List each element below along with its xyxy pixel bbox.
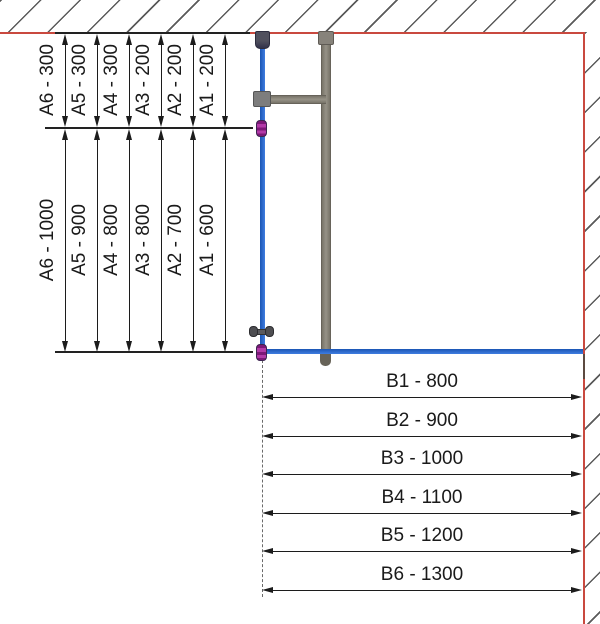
dim-label: A3 - 800 [131, 140, 157, 340]
ceiling-mount-cap [255, 31, 270, 49]
arrow-down-icon [222, 341, 228, 352]
dim-label: B2 - 900 [332, 409, 512, 433]
wall-line-dark-segment [583, 354, 585, 379]
dim-label: A6 - 1000 [35, 140, 61, 340]
wall-bracket-knob-left [249, 326, 258, 337]
glass-panel-edge-vertical [260, 40, 265, 354]
dim-label: A1 - 200 [195, 20, 221, 140]
arrow-right-icon [571, 510, 582, 516]
dim-label: A5 - 900 [67, 140, 93, 340]
connector-floor [256, 344, 267, 361]
wall-bracket-knob-right [265, 326, 274, 337]
arrow-down-icon [62, 341, 68, 352]
dim-label: A1 - 600 [195, 140, 221, 340]
support-bar-ceiling-cap [318, 31, 334, 45]
dim-label: B1 - 800 [332, 370, 512, 394]
dim-label: A4 - 800 [99, 140, 125, 340]
wall-hatch [585, 32, 600, 624]
dim-label: B5 - 1200 [332, 524, 512, 548]
dim-label: A3 - 200 [131, 20, 157, 140]
arrow-down-icon [190, 341, 196, 352]
arrow-down-icon [94, 341, 100, 352]
support-bar-horizontal [262, 95, 326, 104]
arrow-down-icon [222, 116, 228, 127]
arrow-down-icon [126, 341, 132, 352]
dim-label: B6 - 1300 [332, 563, 512, 587]
arrow-right-icon [571, 433, 582, 439]
arrow-down-icon [158, 341, 164, 352]
dim-label: A2 - 700 [163, 140, 189, 340]
arrow-right-icon [571, 587, 582, 593]
arrow-right-icon [571, 548, 582, 554]
support-bar-vertical [321, 33, 331, 358]
wall-line [583, 32, 585, 624]
dim-label: A4 - 300 [99, 20, 125, 140]
dimension-diagram: A6 - 300 A5 - 300 A4 - 300 A3 - 200 A2 -… [0, 0, 600, 624]
dim-label: B4 - 1100 [332, 486, 512, 510]
dim-label: A2 - 200 [163, 20, 189, 140]
glass-clamp-bracket [253, 91, 271, 107]
dim-label: A5 - 300 [67, 20, 93, 140]
glass-panel-edge-horizontal [262, 349, 583, 354]
arrow-right-icon [571, 394, 582, 400]
connector-mid [256, 120, 267, 137]
dim-label: B3 - 1000 [332, 447, 512, 471]
dim-label: A6 - 300 [35, 20, 61, 140]
support-bar-floor-tip [320, 352, 331, 366]
arrow-right-icon [571, 471, 582, 477]
